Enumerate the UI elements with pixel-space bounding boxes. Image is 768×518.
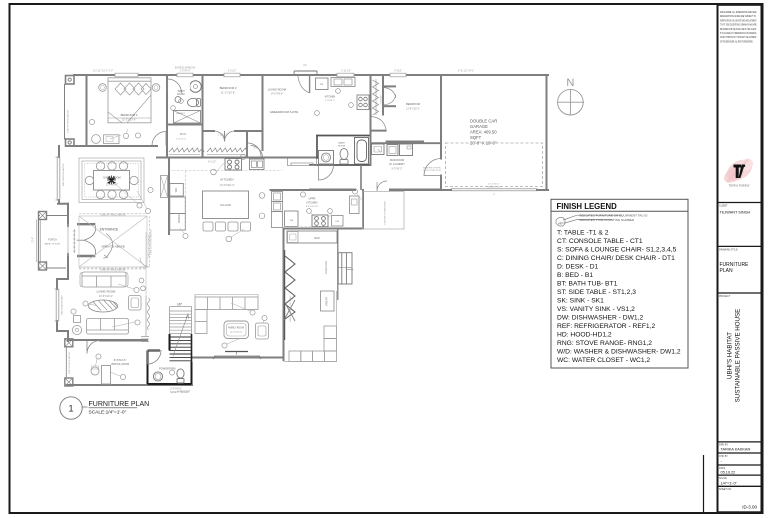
svg-text:OF THE DESIGNER. ALL RIGHTS RE: OF THE DESIGNER. ALL RIGHTS RESERVED.	[720, 39, 753, 43]
svg-text:CONCRETE WALKWAY: CONCRETE WALKWAY	[384, 201, 387, 225]
svg-text:A1: A1	[558, 222, 562, 226]
svg-text:FRI: FRI	[320, 84, 324, 86]
svg-text:LINE OF DECK ABOVE: LINE OF DECK ABOVE	[68, 351, 71, 374]
svg-text:LINE OF WALL ABOVE: LINE OF WALL ABOVE	[100, 213, 125, 216]
svg-text:DOUBLE CAR: DOUBLE CAR	[470, 119, 497, 124]
svg-text:OPEN TO ABOVE: OPEN TO ABOVE	[101, 245, 125, 249]
svg-text:DW: DISHWASHER - DW1,2: DW: DISHWASHER - DW1,2	[557, 315, 643, 322]
svg-text:WASH: WASH	[338, 142, 345, 145]
svg-text:BEDROOM 4: BEDROOM 4	[121, 113, 138, 117]
svg-text:2'-01/2" 4'-6": 2'-01/2" 4'-6"	[178, 391, 191, 393]
svg-text:UBHI'S HABITAT: UBHI'S HABITAT	[727, 332, 734, 379]
svg-text:CABINET: CABINET	[176, 112, 185, 115]
svg-text:UP: UP	[303, 65, 307, 67]
svg-text:FINISH LEGEND: FINISH LEGEND	[557, 202, 618, 211]
svg-text:11'-8"X10'-2": 11'-8"X10'-2"	[406, 108, 420, 111]
svg-text:D: DESK - D1: D: DESK - D1	[557, 264, 599, 271]
svg-text:FURNITURE PLAN: FURNITURE PLAN	[89, 401, 150, 408]
svg-text:6'-6 1/2": 6'-6 1/2"	[208, 162, 217, 164]
svg-text:ST: SIDE TABLE - ST1,2,3: ST: SIDE TABLE - ST1,2,3	[557, 289, 636, 296]
svg-text:BAY WINDOW ABV: BAY WINDOW ABV	[61, 295, 64, 315]
svg-text:05.19.22: 05.19.22	[721, 471, 736, 475]
svg-text:3'-0 1/2": 3'-0 1/2"	[228, 71, 237, 73]
svg-text:SQFT: SQFT	[470, 135, 482, 140]
svg-text:DRN BY: DRN BY	[719, 444, 728, 447]
svg-text:3'-41/2": 3'-41/2"	[394, 71, 402, 73]
svg-text:T: TABLE -T1 & 2: T: TABLE -T1 & 2	[557, 230, 609, 237]
svg-text:14'-0"X9'-6": 14'-0"X9'-6"	[271, 93, 284, 96]
svg-text:7'-6"X3'-0": 7'-6"X3'-0"	[176, 139, 186, 141]
svg-text:LIVING ROOM: LIVING ROOM	[97, 290, 116, 294]
svg-text:KITCHEN: KITCHEN	[220, 178, 233, 182]
svg-text:WASH: WASH	[178, 90, 185, 93]
svg-text:16'-0"X8'-0": 16'-0"X8'-0"	[488, 184, 500, 186]
svg-text:LINE OF WALL ABOVE: LINE OF WALL ABOVE	[100, 269, 125, 272]
svg-text:MUD ROOM: MUD ROOM	[390, 159, 404, 162]
svg-text:W. LAUNDRY: W. LAUNDRY	[389, 163, 405, 166]
svg-text:4'-10 1/2" 24'-1": 4'-10 1/2" 24'-1"	[458, 71, 474, 73]
svg-text:ID-3.00: ID-3.00	[742, 505, 757, 510]
svg-text:VIRTUAL ROOM: VIRTUAL ROOM	[111, 363, 129, 366]
svg-text:2'-2 1/2" 13'-1" 2'-0": 2'-2 1/2" 13'-1" 2'-0"	[93, 71, 113, 73]
svg-text:INDICATES TYPE COUNTING NUMBER: INDICATES TYPE COUNTING NUMBER	[579, 218, 635, 222]
svg-text:CLOSET: CLOSET	[381, 94, 383, 103]
svg-text:LINE OF WOOD JOIST ABV: LINE OF WOOD JOIST ABV	[289, 295, 292, 322]
svg-text:1: 1	[68, 404, 73, 415]
svg-text:SHEET NO.: SHEET NO.	[719, 488, 732, 491]
svg-text:RNG: STOVE RANGE- RNG1,2: RNG: STOVE RANGE- RNG1,2	[557, 340, 652, 347]
svg-text:PROJECT: PROJECT	[719, 295, 731, 298]
svg-text:2'-6"X4'-0": 2'-6"X4'-0"	[180, 71, 191, 73]
svg-text:REF: REFRIGERATOR - REF1,2: REF: REFRIGERATOR - REF1,2	[557, 323, 655, 330]
svg-text:2'-6": 2'-6"	[254, 148, 259, 150]
svg-text:AREA: 409.50: AREA: 409.50	[470, 130, 497, 135]
svg-text:VS: VANITY SINK - VS1,2: VS: VANITY SINK - VS1,2	[557, 306, 635, 313]
svg-text:SOLID CORE DOOR: SOLID CORE DOOR	[423, 170, 441, 172]
svg-text:FRIDGE: FRIDGE	[179, 214, 181, 223]
svg-text:FAMILY ROOM: FAMILY ROOM	[228, 327, 244, 330]
svg-text:BEDROOM 3: BEDROOM 3	[220, 86, 237, 90]
svg-text:8'-8"X12'-10": 8'-8"X12'-10"	[306, 206, 319, 208]
svg-text:PORCH: PORCH	[48, 239, 57, 242]
svg-text:12'-2"X13'-6": 12'-2"X13'-6"	[122, 119, 137, 122]
svg-text:FRI: FRI	[290, 220, 294, 222]
svg-text:PLAN: PLAN	[720, 268, 733, 274]
svg-text:ROOM: ROOM	[338, 146, 345, 148]
svg-text:SCALE:1/4"=1'-0": SCALE:1/4"=1'-0"	[89, 410, 127, 416]
svg-text:W/D: W/D	[176, 187, 178, 192]
svg-text:8'-0"X10'-6": 8'-0"X10'-6"	[114, 359, 127, 362]
svg-text:B: BED - B1: B: BED - B1	[557, 272, 593, 279]
svg-text:UPPR: UPPR	[309, 198, 316, 201]
svg-text:SK: SINK - SK1: SK: SINK - SK1	[557, 298, 604, 305]
svg-text:W/D: WASHER & DISHWASHER- DW1,: W/D: WASHER & DISHWASHER- DW1,2	[557, 349, 681, 356]
svg-text:UP: UP	[177, 303, 183, 307]
svg-text:8'-2"X6'-2": 8'-2"X6'-2"	[392, 168, 403, 170]
svg-text:GARAGE DOOR: GARAGE DOOR	[487, 185, 502, 188]
svg-text:WEATHER STRIPED: WEATHER STRIPED	[423, 167, 442, 170]
svg-text:LINE OF FLOOR ABOVE: LINE OF FLOOR ABOVE	[150, 229, 153, 254]
svg-text:GREENROOM SUITE: GREENROOM SUITE	[270, 110, 299, 114]
svg-text:DINING ROOM: DINING ROOM	[103, 177, 120, 180]
svg-text:WC: WATER CLOSET - WC1,2: WC: WATER CLOSET - WC1,2	[557, 357, 650, 364]
svg-text:CT: CONSOLE TABLE - CT1: CT: CONSOLE TABLE - CT1	[557, 238, 643, 245]
svg-text:ROOM: ROOM	[177, 94, 184, 96]
svg-text:BAY WINDOW ABOVE: BAY WINDOW ABOVE	[62, 163, 65, 186]
svg-text:7'-0"X9'-2": 7'-0"X9'-2"	[325, 100, 335, 102]
svg-text:SCALE: SCALE	[719, 477, 727, 480]
svg-text:W.I.C.: W.I.C.	[180, 133, 187, 136]
svg-text:SUSTAINABLE PASSIVE HOUSE: SUSTAINABLE PASSIVE HOUSE	[735, 309, 742, 403]
svg-text:11'-0"X14'-6": 11'-0"X14'-6"	[230, 332, 243, 334]
svg-text:BEDROOM: BEDROOM	[406, 102, 421, 106]
svg-text:BAR: BAR	[314, 236, 319, 240]
svg-text:FIREPLACE: FIREPLACE	[325, 260, 328, 274]
svg-text:TEJWANT SINGH: TEJWANT SINGH	[720, 211, 751, 215]
svg-text:KITCHEN: KITCHEN	[307, 201, 318, 204]
svg-text:N: N	[566, 77, 574, 89]
svg-text:13'-6": 13'-6"	[33, 237, 35, 243]
svg-text:GARAGE: GARAGE	[470, 124, 488, 129]
svg-text:Tarika Kakkar: Tarika Kakkar	[728, 184, 750, 188]
svg-text:▲: ▲	[493, 193, 495, 196]
svg-text:CHK BY: CHK BY	[719, 455, 728, 458]
svg-text:DATE: DATE	[719, 467, 726, 470]
svg-text:11'-1"X10'-6": 11'-1"X10'-6"	[221, 92, 235, 95]
svg-text:LIVING ROOM: LIVING ROOM	[268, 88, 287, 92]
svg-text:1/4"=1'-0": 1/4"=1'-0"	[721, 482, 738, 486]
svg-text:2'-111/2": 2'-111/2"	[218, 135, 227, 137]
svg-text:13'-6"X16'-0": 13'-6"X16'-0"	[99, 295, 114, 298]
svg-text:ENTRANCE: ENTRANCE	[100, 228, 119, 232]
svg-text:13'-0"X20'-4": 13'-0"X20'-4"	[220, 183, 235, 187]
svg-text:2'-10 1/2": 2'-10 1/2"	[341, 71, 351, 73]
svg-text:DRAWING TITLE: DRAWING TITLE	[719, 249, 738, 252]
svg-text:C: DINING CHAIR/ DESK CHAIR -: C: DINING CHAIR/ DESK CHAIR - DT1	[557, 255, 675, 262]
svg-text:KITCHEN: KITCHEN	[325, 96, 336, 99]
svg-text:HD: HOOD-HD1,2: HD: HOOD-HD1,2	[557, 332, 612, 339]
svg-text:ISLAND: ISLAND	[220, 203, 232, 207]
svg-text:CLIENT: CLIENT	[719, 205, 728, 208]
svg-text:BT: BATH TUB- BT1: BT: BATH TUB- BT1	[557, 281, 618, 288]
svg-text:TARIKA KAKKAR: TARIKA KAKKAR	[721, 448, 751, 452]
svg-text:FIRE PIT: FIRE PIT	[327, 296, 329, 306]
svg-text:LINE OF DECK ABOVE: LINE OF DECK ABOVE	[67, 109, 70, 133]
svg-text:AREA: 79 SQFT: AREA: 79 SQFT	[44, 243, 61, 246]
svg-text:EGRESS WINDOW: EGRESS WINDOW	[175, 67, 196, 69]
svg-text:S: SOFA & LOUNGE CHAIR- S1,2,3: S: SOFA & LOUNGE CHAIR- S1,2,3,4,5	[557, 247, 677, 254]
